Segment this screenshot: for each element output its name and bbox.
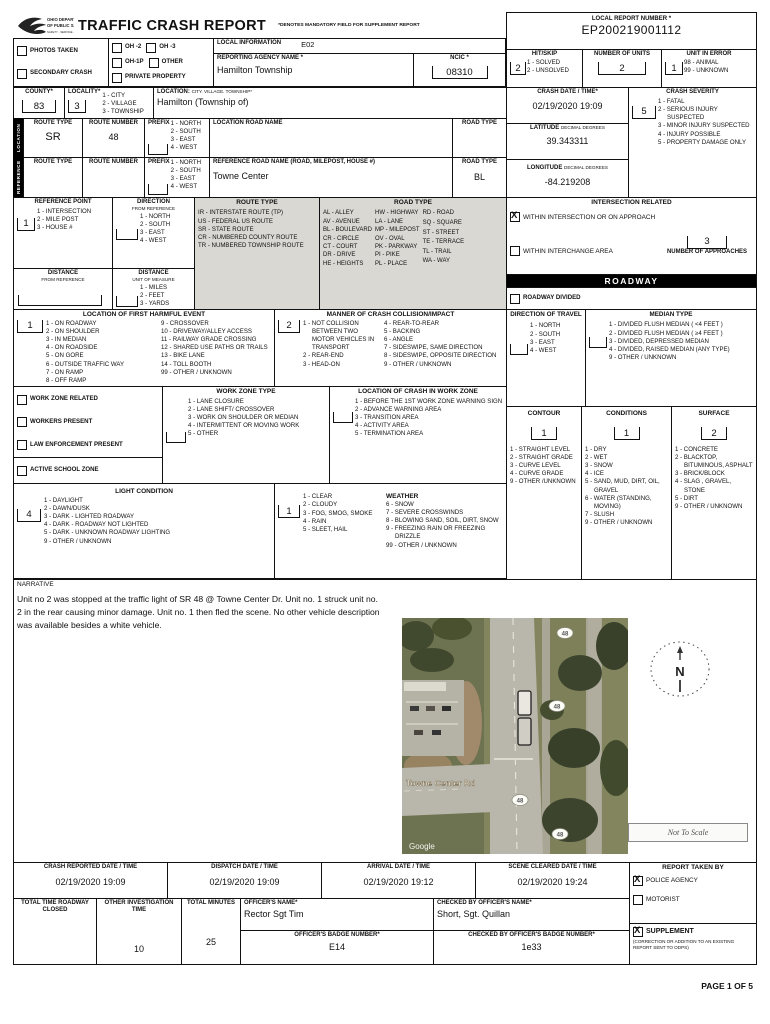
conditions-options: 1 - DRY2 - WET3 - SNOW4 - ICE5 - SAND, M… xyxy=(585,446,668,528)
locality-value[interactable]: 3 xyxy=(68,100,86,113)
option-item: LA - LANE xyxy=(375,218,420,226)
median-type-options: 1 - DIVIDED FLUSH MEDIAN ( <4 FEET )2 - … xyxy=(609,321,730,362)
option-item: 2 - SERIOUS INJURY SUSPECTED xyxy=(658,106,753,122)
option-item: 3 - EAST xyxy=(140,229,171,237)
distance-from-reference-cell: DISTANCEFROM REFERENCE xyxy=(13,268,113,310)
active-school-zone-checkbox[interactable] xyxy=(17,466,27,476)
roadway-divided-checkbox[interactable] xyxy=(510,294,520,304)
google-watermark: Google xyxy=(409,842,435,851)
option-item: 2 - ADVANCE WARNING AREA xyxy=(355,406,502,414)
option-item: 3 - DARK - LIGHTED ROADWAY xyxy=(44,513,170,521)
manner-col1: 1 - NOT COLLISION BETWEEN TWO MOTOR VEHI… xyxy=(303,320,381,369)
local-report-number-cell: LOCAL REPORT NUMBER * EP200219001112 xyxy=(506,12,757,50)
work-zone-checkbox-cell: WORK ZONE RELATED WORKERS PRESENT LAW EN… xyxy=(13,386,163,458)
roadway-divided-cell: ROADWAY DIVIDED xyxy=(506,287,757,310)
option-item: 4 - SLAG , GRAVEL, STONE xyxy=(675,478,753,494)
option-item: 9 - OTHER / UNKNOWN xyxy=(585,519,668,527)
option-item: HW - HIGHWAY xyxy=(375,209,420,217)
option-item: US - FEDERAL US ROUTE xyxy=(198,218,316,226)
oh3-checkbox[interactable] xyxy=(146,43,156,53)
option-item: 14 - TOLL BOOTH xyxy=(161,361,271,369)
option-item: 3 - TOWNSHIP xyxy=(102,108,144,116)
police-agency-checkbox[interactable] xyxy=(633,876,643,886)
latitude-cell: LATITUDE DECIMAL DEGREES 39.343311 xyxy=(506,123,629,160)
option-item: 4 - DIVIDED, RAISED MEDIAN (ANY TYPE) xyxy=(609,346,730,354)
option-item: 1 - MILES xyxy=(140,284,170,292)
location-route-type-value[interactable]: SR xyxy=(27,131,79,143)
option-item: 9 - CROSSOVER xyxy=(161,320,271,328)
option-item: 99 - UNKNOWN xyxy=(684,67,728,75)
crash-severity-cell: CRASH SEVERITY 5 1 - FATAL2 - SERIOUS IN… xyxy=(628,87,757,198)
option-item: PK - PARKWAY xyxy=(375,243,420,251)
report-taken-by-cell: REPORT TAKEN BY POLICE AGENCY MOTORIST xyxy=(629,862,757,924)
option-item: 6 - OUTSIDE TRAFFIC WAY xyxy=(46,361,158,369)
svg-text:48: 48 xyxy=(517,799,524,805)
roadway-section-bar: ROADWAY xyxy=(506,274,757,288)
option-item: 2 - FEET xyxy=(140,292,170,300)
option-item: 2 - BLACKTOP, BITUMINOUS, ASPHALT xyxy=(675,454,753,470)
option-item: 5 - DARK - UNKNOWN ROADWAY LIGHTING xyxy=(44,529,170,537)
crash-date-cell: CRASH DATE / TIME* 02/19/2020 19:09 xyxy=(506,87,629,124)
crash-reported-cell: CRASH REPORTED DATE / TIME 02/19/2020 19… xyxy=(13,862,168,899)
arrival-value[interactable]: 02/19/2020 19:12 xyxy=(325,877,472,887)
arrival-cell: ARRIVAL DATE / TIME 02/19/2020 19:12 xyxy=(321,862,476,899)
option-item: 7 - ON RAMP xyxy=(46,369,158,377)
crash-report-form: OHIO DEPARTMENT OF PUBLIC SAFETY SAFETY … xyxy=(13,12,757,991)
distance-from-reference-value[interactable] xyxy=(18,295,102,306)
dispatch-value[interactable]: 02/19/2020 19:09 xyxy=(171,877,318,887)
page-number: PAGE 1 OF 5 xyxy=(13,981,757,991)
option-item: 7 - SIDESWIPE, SAME DIRECTION xyxy=(384,344,503,352)
within-interchange-checkbox[interactable] xyxy=(510,246,520,256)
light-condition-value[interactable]: 4 xyxy=(17,509,41,522)
conditions-cell: CONDITIONS 1 1 - DRY2 - WET3 - SNOW4 - I… xyxy=(581,406,672,580)
officer-name-cell: OFFICER'S NAME* Rector Sgt Tim xyxy=(240,898,434,931)
dispatch-cell: DISPATCH DATE / TIME 02/19/2020 19:09 xyxy=(167,862,322,899)
contour-options: 1 - STRAIGHT LEVEL2 - STRAIGHT GRADE3 - … xyxy=(510,446,578,487)
reference-point-options: 1 - INTERSECTION2 - MILE POST3 - HOUSE # xyxy=(37,208,91,232)
surface-options: 1 - CONCRETE2 - BLACKTOP, BITUMINOUS, AS… xyxy=(675,446,753,511)
road-type-col2: HW - HIGHWAYLA - LANEMP - MILEPOSTOV - O… xyxy=(375,209,420,268)
crash-reported-value[interactable]: 02/19/2020 19:09 xyxy=(17,877,164,887)
supplement-cell: SUPPLEMENT (CORRECTION OR ADDITION TO AN… xyxy=(629,923,757,965)
option-item: 2 - DIVIDED FLUSH MEDIAN ( ≥4 FEET ) xyxy=(609,330,730,338)
option-item: ST - STREET xyxy=(423,229,465,239)
option-item: 8 - BLOWING SAND, SOIL, DIRT, SNOW xyxy=(386,517,503,525)
option-item: 9 - OTHER / UNKNOWN xyxy=(675,503,753,511)
option-item: 4 - WEST xyxy=(171,183,202,191)
option-item: 2 - STRAIGHT GRADE xyxy=(510,454,578,462)
local-report-number-value[interactable]: EP200219001112 xyxy=(510,23,753,37)
option-item: 1 - BEFORE THE 1ST WORK ZONE WARNING SIG… xyxy=(355,398,502,406)
location-cvt-value[interactable]: Hamilton (Township of) xyxy=(157,97,503,107)
form-type-checkbox-cell: OH -2 OH -3 OH-1P OTHER PRIVATE PROPERTY xyxy=(108,38,214,87)
option-item: 5 - TERMINATION AREA xyxy=(355,430,502,438)
direction-of-travel-options: 1 - NORTH2 - SOUTH3 - EAST4 - WEST xyxy=(530,322,561,355)
option-item: 2 - SOUTH xyxy=(171,167,202,175)
option-item: 3 - SNOW xyxy=(585,462,668,470)
crash-severity-options: 1 - FATAL2 - SERIOUS INJURY SUSPECTED3 -… xyxy=(658,98,753,147)
option-item: 9 - OTHER / UNKNOWN xyxy=(44,538,170,546)
option-item: 8 - OFF RAMP xyxy=(46,377,158,385)
reference-point-cell: REFERENCE POINT 1 1 - INTERSECTION2 - MI… xyxy=(13,197,113,269)
option-item: 3 - HOUSE # xyxy=(37,224,91,232)
form-header: OHIO DEPARTMENT OF PUBLIC SAFETY SAFETY … xyxy=(13,12,507,39)
option-item: 4 - ACTIVITY AREA xyxy=(355,422,502,430)
intersection-related-cell: INTERSECTION RELATED WITHIN INTERSECTION… xyxy=(506,197,757,275)
option-item: TL - TRAIL xyxy=(423,248,465,258)
option-item: 1 - LANE CLOSURE xyxy=(188,398,299,406)
option-item: 3 - WORK ON SHOULDER OR MEDIAN xyxy=(188,414,299,422)
hit-skip-cell: HIT/SKIP 2 1 - SOLVED2 - UNSOLVED xyxy=(506,49,583,88)
direction-of-travel-value[interactable] xyxy=(510,344,528,355)
option-item: 2 - DAWN/DUSK xyxy=(44,505,170,513)
option-item: 2 - CLOUDY xyxy=(303,501,383,509)
reference-prefix-cell: PREFIX 1 - NORTH2 - SOUTH3 - EAST4 - WES… xyxy=(144,157,210,198)
option-item: 2 - SOUTH xyxy=(171,128,202,136)
reference-point-value[interactable]: 1 xyxy=(17,218,35,231)
weather-value[interactable]: 1 xyxy=(278,505,300,518)
officer-badge-value[interactable]: E14 xyxy=(244,942,430,952)
option-item: 3 - EAST xyxy=(171,136,202,144)
photo-checkbox-cell: PHOTOS TAKEN SECONDARY CRASH xyxy=(13,38,109,87)
option-item: 1 - ON ROADWAY xyxy=(46,320,158,328)
svg-text:48: 48 xyxy=(554,705,561,711)
option-item: 4 - WEST xyxy=(530,347,561,355)
light-condition-cell: LIGHT CONDITION 4 1 - DAYLIGHT2 - DAWN/D… xyxy=(13,483,275,579)
photos-taken-row: PHOTOS TAKEN xyxy=(17,46,105,56)
option-item: 2 - WET xyxy=(585,454,668,462)
option-item: 1 - SOLVED xyxy=(527,59,569,67)
first-harmful-col1: 1 - ON ROADWAY2 - ON SHOULDER3 - IN MEDI… xyxy=(46,320,158,385)
option-item: 2 - UNSOLVED xyxy=(527,67,569,75)
option-item: 1 - NORTH xyxy=(171,120,202,128)
crash-in-work-zone-cell: LOCATION OF CRASH IN WORK ZONE 1 - BEFOR… xyxy=(329,386,507,484)
checked-by-badge-value[interactable]: 1e33 xyxy=(437,942,626,952)
workers-present-checkbox[interactable] xyxy=(17,417,27,427)
option-item: 3 - FOG, SMOG, SMOKE xyxy=(303,510,383,518)
option-item: 3 - MINOR INJURY SUSPECTED xyxy=(658,122,753,130)
option-item: 12 - SHARED USE PATHS OR TRAILS xyxy=(161,344,271,352)
motorist-checkbox[interactable] xyxy=(633,895,643,905)
location-road-name-cell: LOCATION ROAD NAME xyxy=(209,118,453,158)
option-item: 4 - REAR-TO-REAR xyxy=(384,320,503,328)
reporting-agency-cell: REPORTING AGENCY NAME * Hamilton Townshi… xyxy=(213,53,414,87)
option-item: IR - INTERSTATE ROUTE (TP) xyxy=(198,209,316,217)
direction-from-reference-options: 1 - NORTH2 - SOUTH3 - EAST4 - WEST xyxy=(140,213,171,246)
crash-in-work-zone-value[interactable] xyxy=(333,412,353,423)
supplement-checkbox[interactable] xyxy=(633,927,643,937)
longitude-cell: LONGITUDE DECIMAL DEGREES -84.219208 xyxy=(506,159,629,198)
option-item: 2 - SOUTH xyxy=(140,221,171,229)
option-item: 3 - CURVE LEVEL xyxy=(510,462,578,470)
local-information-cell: LOCAL INFORMATION E02 xyxy=(213,38,506,54)
total-minutes-value[interactable]: 25 xyxy=(185,937,237,947)
option-item: 5 - SAND, MUD, DIRT, OIL, GRAVEL xyxy=(585,478,668,494)
option-item: 1 - NORTH xyxy=(171,159,202,167)
option-item: 5 - BACKING xyxy=(384,328,503,336)
option-item: 4 - DARK - ROADWAY NOT LIGHTED xyxy=(44,521,170,529)
first-harmful-event-cell: LOCATION OF FIRST HARMFUL EVENT 1 1 - ON… xyxy=(13,309,275,387)
option-item: 5 - DIRT xyxy=(675,495,753,503)
option-item: 1 - DIVIDED FLUSH MEDIAN ( <4 FEET ) xyxy=(609,321,730,329)
road-type-legend: ROAD TYPE AL - ALLEYAV - AVENUEBL - BOUL… xyxy=(319,197,507,310)
option-item: 3 - DIVIDED, DEPRESSED MEDIAN xyxy=(609,338,730,346)
option-item: 9 - OTHER /UNKNOWN xyxy=(510,478,578,486)
option-item: CR - CIRCLE xyxy=(323,235,372,243)
option-item: 1 - NORTH xyxy=(140,213,171,221)
distance-unit-options: 1 - MILES2 - FEET3 - YARDS xyxy=(140,284,170,308)
option-item: 1 - STRAIGHT LEVEL xyxy=(510,446,578,454)
option-item: 2 - MILE POST xyxy=(37,216,91,224)
svg-text:OF PUBLIC SAFETY: OF PUBLIC SAFETY xyxy=(47,23,74,28)
svg-text:48: 48 xyxy=(562,632,569,638)
weather-cell: 1 1 - CLEAR2 - CLOUDY3 - FOG, SMOG, SMOK… xyxy=(274,483,507,579)
locality-options: 1 - CITY2 - VILLAGE3 - TOWNSHIP xyxy=(102,92,144,116)
work-zone-type-options: 1 - LANE CLOSURE2 - LANE SHIFT/ CROSSOVE… xyxy=(188,398,299,443)
reference-road-type-value[interactable]: BL xyxy=(456,172,503,182)
reference-route-number-cell: ROUTE NUMBER xyxy=(82,157,145,198)
oh2-checkbox[interactable] xyxy=(112,43,122,53)
location-cvt-cell: LOCATION: CITY. VILLAGE. TOWNSHIP* Hamil… xyxy=(153,87,507,119)
hit-skip-options: 1 - SOLVED2 - UNSOLVED xyxy=(527,59,569,75)
option-item: 1 - NOT COLLISION BETWEEN TWO MOTOR VEHI… xyxy=(303,320,381,353)
secondary-crash-row: SECONDARY CRASH xyxy=(17,69,105,79)
option-item: AV - AVENUE xyxy=(323,218,372,226)
road-type-col3: RD - ROADSQ - SQUAREST - STREETTE - TERR… xyxy=(423,209,465,268)
svg-text:SAFETY - SERVICE - PROTECTION: SAFETY - SERVICE - PROTECTION xyxy=(47,30,74,34)
surface-value[interactable]: 2 xyxy=(701,427,727,440)
first-harmful-value[interactable]: 1 xyxy=(17,320,43,333)
surface-cell: SURFACE 2 1 - CONCRETE2 - BLACKTOP, BITU… xyxy=(671,406,757,580)
option-item: HE - HEIGHTS xyxy=(323,260,372,268)
option-item: 99 - OTHER / UNKNOWN xyxy=(161,369,271,377)
median-type-cell: MEDIAN TYPE 1 - DIVIDED FLUSH MEDIAN ( <… xyxy=(585,309,757,407)
checked-by-name-cell: CHECKED BY OFFICER'S NAME* Short, Sgt. Q… xyxy=(433,898,630,931)
mandatory-note: *DENOTES MANDATORY FIELD FOR SUPPLEMENT … xyxy=(278,23,438,28)
option-item: RD - ROAD xyxy=(423,209,465,219)
other-form-checkbox[interactable] xyxy=(149,58,159,68)
direction-of-travel-cell: DIRECTION OF TRAVEL 1 - NORTH2 - SOUTH3 … xyxy=(506,309,586,407)
latitude-value[interactable]: 39.343311 xyxy=(510,136,625,146)
option-item: 4 - INJURY POSSIBLE xyxy=(658,131,753,139)
option-item: TR - NUMBERED TOWNSHIP ROUTE xyxy=(198,242,316,250)
option-item: 2 - ON SHOULDER xyxy=(46,328,158,336)
scene-cleared-value[interactable]: 02/19/2020 19:24 xyxy=(479,877,626,887)
option-item: SR - STATE ROUTE xyxy=(198,226,316,234)
locality-cell: LOCALITY* 3 1 - CITY2 - VILLAGE3 - TOWNS… xyxy=(64,87,154,119)
location-route-type-cell: ROUTE TYPE SR xyxy=(23,118,83,158)
option-item: 7 - SEVERE CROSSWINDS xyxy=(386,509,503,517)
option-item: 4 - WEST xyxy=(140,237,171,245)
officer-name-value[interactable]: Rector Sgt Tim xyxy=(244,909,430,919)
hit-skip-value[interactable]: 2 xyxy=(510,62,526,75)
checked-by-name-value[interactable]: Short, Sgt. Quillan xyxy=(437,909,626,919)
direction-from-reference-cell: DIRECTIONFROM REFERENCE 1 - NORTH2 - SOU… xyxy=(112,197,195,269)
option-item: 5 - OTHER xyxy=(188,430,299,438)
compass-north-icon: N xyxy=(648,636,712,702)
conditions-value[interactable]: 1 xyxy=(614,427,640,440)
option-item: 3 - EAST xyxy=(171,175,202,183)
contour-value[interactable]: 1 xyxy=(531,427,557,440)
other-investigation-time-cell: OTHER INVESTIGATION TIME 10 xyxy=(96,898,182,965)
option-item: PL - PLACE xyxy=(375,260,420,268)
active-school-zone-cell: ACTIVE SCHOOL ZONE xyxy=(13,457,163,484)
option-item: 3 - BRICK/BLOCK xyxy=(675,470,753,478)
reference-road-name-value[interactable]: Towne Center xyxy=(213,171,449,181)
option-item: 6 - WATER (STANDING, MOVING) xyxy=(585,495,668,511)
first-harmful-col2: 9 - CROSSOVER10 - DRIVEWAY/ALLEY ACCESS1… xyxy=(161,320,271,385)
officer-badge-cell: OFFICER'S BADGE NUMBER* E14 xyxy=(240,930,434,965)
option-item: 1 - CONCRETE xyxy=(675,446,753,454)
option-item: 2 - SOUTH xyxy=(530,331,561,339)
option-item: 98 - ANIMAL xyxy=(684,59,728,67)
road-type-col1: AL - ALLEYAV - AVENUEBL - BOULEVARDCR - … xyxy=(323,209,372,268)
route-type-legend: ROUTE TYPE IR - INTERSTATE ROUTE (TP)US … xyxy=(194,197,320,310)
svg-text:N: N xyxy=(675,664,684,679)
option-item: 5 - ON GORE xyxy=(46,352,158,360)
option-item: 2 - VILLAGE xyxy=(102,100,144,108)
option-item: 6 - ANGLE xyxy=(384,336,503,344)
option-item: 4 - CURVE GRADE xyxy=(510,470,578,478)
location-road-type-cell: ROAD TYPE xyxy=(452,118,507,158)
photos-taken-checkbox[interactable] xyxy=(17,46,27,56)
other-investigation-time-value[interactable]: 10 xyxy=(100,944,178,954)
location-route-number-value[interactable]: 48 xyxy=(86,132,141,142)
total-minutes-cell: TOTAL MINUTES 25 xyxy=(181,898,241,965)
distance-unit-value[interactable] xyxy=(116,296,138,307)
option-item: 4 - ICE xyxy=(585,470,668,478)
number-of-units-cell: NUMBER OF UNITS 2 xyxy=(582,49,662,88)
option-item: 3 - IN MEDIAN xyxy=(46,336,158,344)
crash-in-work-zone-options: 1 - BEFORE THE 1ST WORK ZONE WARNING SIG… xyxy=(355,398,502,439)
location-route-number-cell: ROUTE NUMBER 48 xyxy=(82,118,145,158)
option-item: BL - BOULEVARD xyxy=(323,226,372,234)
option-item: DR - DRIVE xyxy=(323,251,372,259)
option-item: 3 - YARDS xyxy=(140,300,170,308)
private-property-checkbox[interactable] xyxy=(112,73,122,83)
odps-eagle-logo-icon: OHIO DEPARTMENT OF PUBLIC SAFETY SAFETY … xyxy=(16,14,74,38)
option-item: 9 - FREEZING RAIN OR FREEZING DRIZZLE xyxy=(386,525,503,541)
option-item: 4 - WEST xyxy=(171,144,202,152)
svg-text:OHIO DEPARTMENT: OHIO DEPARTMENT xyxy=(47,17,74,22)
contour-cell: CONTOUR 1 1 - STRAIGHT LEVEL2 - STRAIGHT… xyxy=(506,406,582,580)
option-item: AL - ALLEY xyxy=(323,209,372,217)
option-item: 1 - DAYLIGHT xyxy=(44,497,170,505)
option-item: 1 - INTERSECTION xyxy=(37,208,91,216)
checked-by-badge-cell: CHECKED BY OFFICER'S BADGE NUMBER* 1e33 xyxy=(433,930,630,965)
not-to-scale-label: Not To Scale xyxy=(628,823,748,842)
option-item: 99 - OTHER / UNKNOWN xyxy=(386,542,503,550)
distance-unit-cell: DISTANCEUNIT OF MEASURE 1 - MILES2 - FEE… xyxy=(112,268,195,310)
unit-in-error-options: 98 - ANIMAL99 - UNKNOWN xyxy=(684,59,728,75)
number-of-approaches-value[interactable]: 3 xyxy=(687,236,727,249)
option-item: 3 - TRANSITION AREA xyxy=(355,414,502,422)
secondary-crash-checkbox[interactable] xyxy=(17,69,27,79)
narrative-cell: NARRATIVE Unit no 2 was stopped at the t… xyxy=(13,579,757,863)
reference-road-name-cell: REFERENCE ROAD NAME (ROAD, MILEPOST, HOU… xyxy=(209,157,453,198)
option-item: 8 - SIDESWIPE, OPPOSITE DIRECTION xyxy=(384,352,503,360)
option-item: 1 - NORTH xyxy=(530,322,561,330)
option-item: 5 - SLEET, HAIL xyxy=(303,526,383,534)
option-item: 1 - CLEAR xyxy=(303,493,383,501)
manner-col2: 4 - REAR-TO-REAR5 - BACKING6 - ANGLE7 - … xyxy=(384,320,503,369)
option-item: CR - NUMBERED COUNTY ROUTE xyxy=(198,234,316,242)
option-item: PI - PIKE xyxy=(375,251,420,259)
county-cell: COUNTY* 83 xyxy=(13,87,65,119)
reference-prefix-value[interactable] xyxy=(148,184,168,195)
county-value[interactable]: 83 xyxy=(22,100,56,113)
work-zone-related-checkbox[interactable] xyxy=(17,395,27,405)
location-prefix-cell: PREFIX 1 - NORTH2 - SOUTH3 - EAST4 - WES… xyxy=(144,118,210,158)
unit-in-error-value[interactable]: 1 xyxy=(665,62,683,75)
work-zone-type-value[interactable] xyxy=(166,432,186,443)
scene-cleared-cell: SCENE CLEARED DATE / TIME 02/19/2020 19:… xyxy=(475,862,630,899)
map-road-label: Towne Center Rd xyxy=(406,778,475,788)
option-item: TE - TERRACE xyxy=(423,238,465,248)
crash-scene-map: 48 48 48 48 Towne Center Rd Google xyxy=(402,618,628,854)
weather-col2: 6 - SNOW7 - SEVERE CROSSWINDS8 - BLOWING… xyxy=(386,501,503,550)
ncic-cell: NCIC * 08310 xyxy=(413,53,506,87)
traffic-crash-report-page: OHIO DEPARTMENT OF PUBLIC SAFETY SAFETY … xyxy=(0,0,770,1024)
within-intersection-checkbox[interactable] xyxy=(510,212,520,222)
location-prefix-value[interactable] xyxy=(148,144,168,155)
crash-date-value[interactable]: 02/19/2020 19:09 xyxy=(510,101,625,111)
reference-prefix-options: 1 - NORTH2 - SOUTH3 - EAST4 - WEST xyxy=(171,159,202,192)
manner-value[interactable]: 2 xyxy=(278,320,300,333)
direction-from-reference-value[interactable] xyxy=(116,229,138,240)
local-information-value[interactable]: E02 xyxy=(301,40,314,52)
option-item: 10 - DRIVEWAY/ALLEY ACCESS xyxy=(161,328,271,336)
option-item: SQ - SQUARE xyxy=(423,219,465,229)
option-item: 9 - OTHER / UNKNOWN xyxy=(609,354,730,362)
weather-col1: 1 - CLEAR2 - CLOUDY3 - FOG, SMOG, SMOKE4… xyxy=(303,493,383,549)
oh1p-checkbox[interactable] xyxy=(112,58,122,68)
option-item: 9 - OTHER / UNKNOWN xyxy=(384,361,503,369)
unit-in-error-cell: UNIT IN ERROR 1 98 - ANIMAL99 - UNKNOWN xyxy=(661,49,757,88)
supplement-note: (CORRECTION OR ADDITION TO AN EXISTING R… xyxy=(633,939,753,951)
option-item: CT - COURT xyxy=(323,243,372,251)
option-item: 1 - CITY xyxy=(102,92,144,100)
option-item: MP - MILEPOST xyxy=(375,226,420,234)
longitude-value[interactable]: -84.219208 xyxy=(510,177,625,187)
option-item: 4 - RAIN xyxy=(303,518,383,526)
option-item: 3 - EAST xyxy=(530,339,561,347)
option-item: 2 - LANE SHIFT/ CROSSOVER xyxy=(188,406,299,414)
number-of-units-value[interactable]: 2 xyxy=(598,62,646,75)
form-title: TRAFFIC CRASH REPORT xyxy=(78,18,266,34)
option-item: 6 - SNOW xyxy=(386,501,503,509)
reporting-agency-value[interactable]: Hamilton Township xyxy=(217,65,410,75)
narrative-text[interactable]: Unit no 2 was stopped at the traffic lig… xyxy=(17,593,385,632)
svg-text:48: 48 xyxy=(557,833,564,839)
crash-severity-value[interactable]: 5 xyxy=(632,106,656,119)
total-time-roadway-closed-cell: TOTAL TIME ROADWAY CLOSED xyxy=(13,898,97,965)
option-item: 5 - PROPERTY DAMAGE ONLY xyxy=(658,139,753,147)
reference-road-type-cell: ROAD TYPE BL xyxy=(452,157,507,198)
work-zone-type-cell: WORK ZONE TYPE 1 - LANE CLOSURE2 - LANE … xyxy=(162,386,330,484)
route-type-legend-options: IR - INTERSTATE ROUTE (TP)US - FEDERAL U… xyxy=(198,209,316,250)
option-item: 4 - INTERMITTENT OR MOVING WORK xyxy=(188,422,299,430)
option-item: 1 - DRY xyxy=(585,446,668,454)
median-type-value[interactable] xyxy=(589,337,607,348)
option-item: OV - OVAL xyxy=(375,235,420,243)
law-enforcement-present-checkbox[interactable] xyxy=(17,440,27,450)
reference-route-type-cell: ROUTE TYPE xyxy=(23,157,83,198)
option-item: WA - WAY xyxy=(423,257,465,267)
manner-of-collision-cell: MANNER OF CRASH COLLISION/IMPACT 2 1 - N… xyxy=(274,309,507,387)
ncic-value[interactable]: 08310 xyxy=(432,66,488,79)
